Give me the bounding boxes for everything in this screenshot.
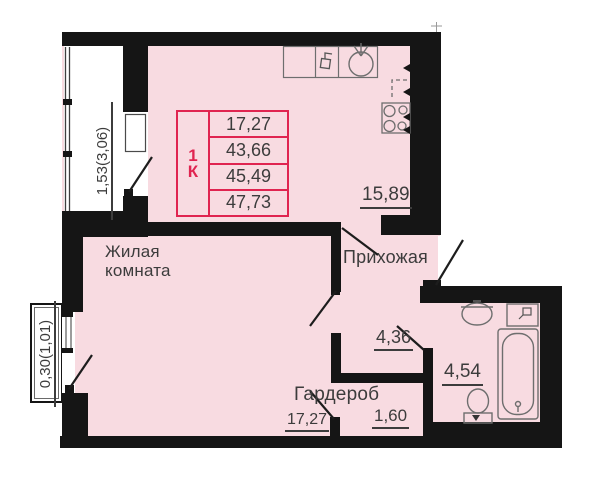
floor-plan: 1 К 17,27 43,66 45,49 47,73 Жилая комнат… — [0, 0, 600, 486]
washing-machine-icon — [507, 304, 538, 326]
wall-arrow-icons — [403, 64, 410, 134]
wardrobe-label: Гардероб — [294, 384, 379, 406]
living-area-value: 17,27 — [285, 411, 329, 432]
balcony-door-window-icon — [126, 115, 153, 193]
toilet-icon — [464, 389, 492, 423]
wardrobe-area-value: 1,60 — [372, 406, 409, 429]
living-door-swing — [310, 291, 336, 326]
apartment-areas: 17,27 43,66 45,49 47,73 — [210, 112, 287, 215]
apartment-type-letter: К — [188, 164, 198, 180]
balcony-left-dimension: 1,53(3,06) — [95, 102, 113, 220]
hallway-label: Прихожая — [343, 247, 428, 268]
living-room-label: Жилая комната — [105, 242, 220, 280]
faucet-icon — [320, 53, 332, 69]
area-row: 47,73 — [210, 189, 287, 215]
kitchen-area-value: 15,89 — [360, 184, 412, 209]
apartment-type-badge: 1 К — [178, 112, 210, 215]
area-row: 45,49 — [210, 163, 287, 189]
bathtub-icon — [498, 329, 538, 419]
dimension-tick-icon — [431, 22, 442, 32]
balcony-left-window-icon — [63, 47, 72, 211]
balcony-bottom-window-icon — [62, 312, 92, 389]
bath-sink-icon — [461, 301, 493, 325]
hallway-area-value: 4,36 — [374, 327, 413, 351]
area-row: 43,66 — [210, 136, 287, 162]
bathroom-area-value: 4,54 — [442, 361, 483, 386]
area-row: 17,27 — [210, 112, 287, 136]
apartment-info-table: 1 К 17,27 43,66 45,49 47,73 — [176, 110, 289, 217]
balcony-bottom-dimension: 0,30(1,01) — [38, 301, 56, 407]
round-sink-icon — [349, 43, 373, 76]
entry-door-swing — [436, 240, 463, 285]
